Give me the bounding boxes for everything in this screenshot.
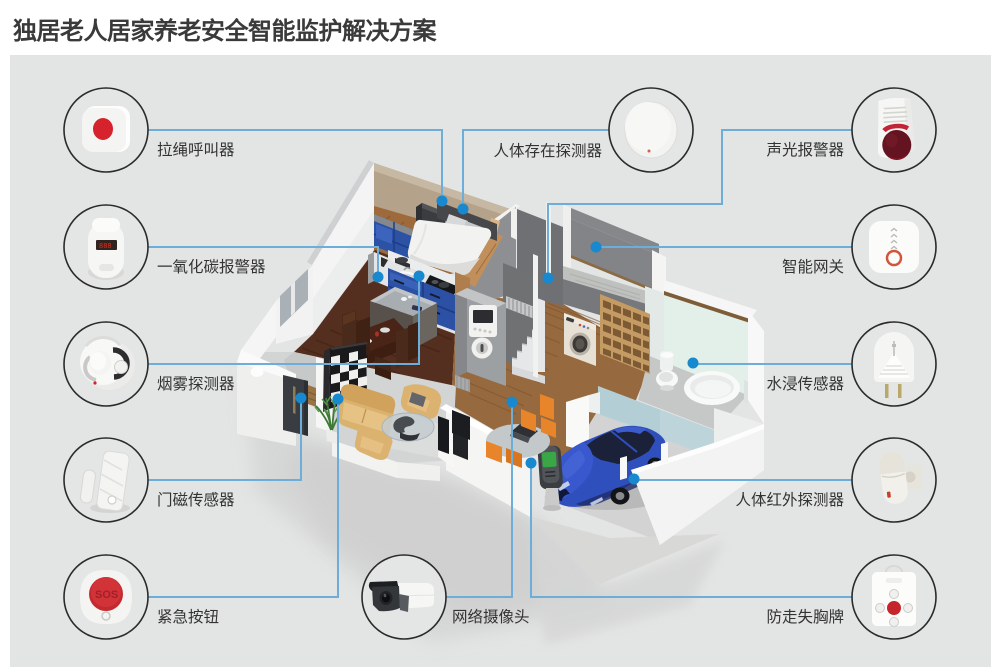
svg-text:网络摄像头: 网络摄像头 xyxy=(452,608,530,626)
svg-text:人体红外探测器: 人体红外探测器 xyxy=(735,491,844,509)
svg-text:SOS: SOS xyxy=(95,589,118,601)
svg-text:拉绳呼叫器: 拉绳呼叫器 xyxy=(157,141,235,159)
svg-text:紧急按钮: 紧急按钮 xyxy=(157,608,219,626)
svg-text:888: 888 xyxy=(99,243,112,251)
svg-text:人体存在探测器: 人体存在探测器 xyxy=(493,142,602,160)
svg-text:防走失胸牌: 防走失胸牌 xyxy=(766,608,844,626)
svg-text:一氧化碳报警器: 一氧化碳报警器 xyxy=(157,258,266,276)
svg-text:门磁传感器: 门磁传感器 xyxy=(157,491,235,509)
svg-text:烟雾探测器: 烟雾探测器 xyxy=(157,375,235,393)
svg-text:水浸传感器: 水浸传感器 xyxy=(766,375,844,393)
svg-text:智能网关: 智能网关 xyxy=(782,258,844,276)
svg-text:声光报警器: 声光报警器 xyxy=(766,141,844,159)
svg-text:独居老人居家养老安全智能监护解决方案: 独居老人居家养老安全智能监护解决方案 xyxy=(13,17,437,45)
